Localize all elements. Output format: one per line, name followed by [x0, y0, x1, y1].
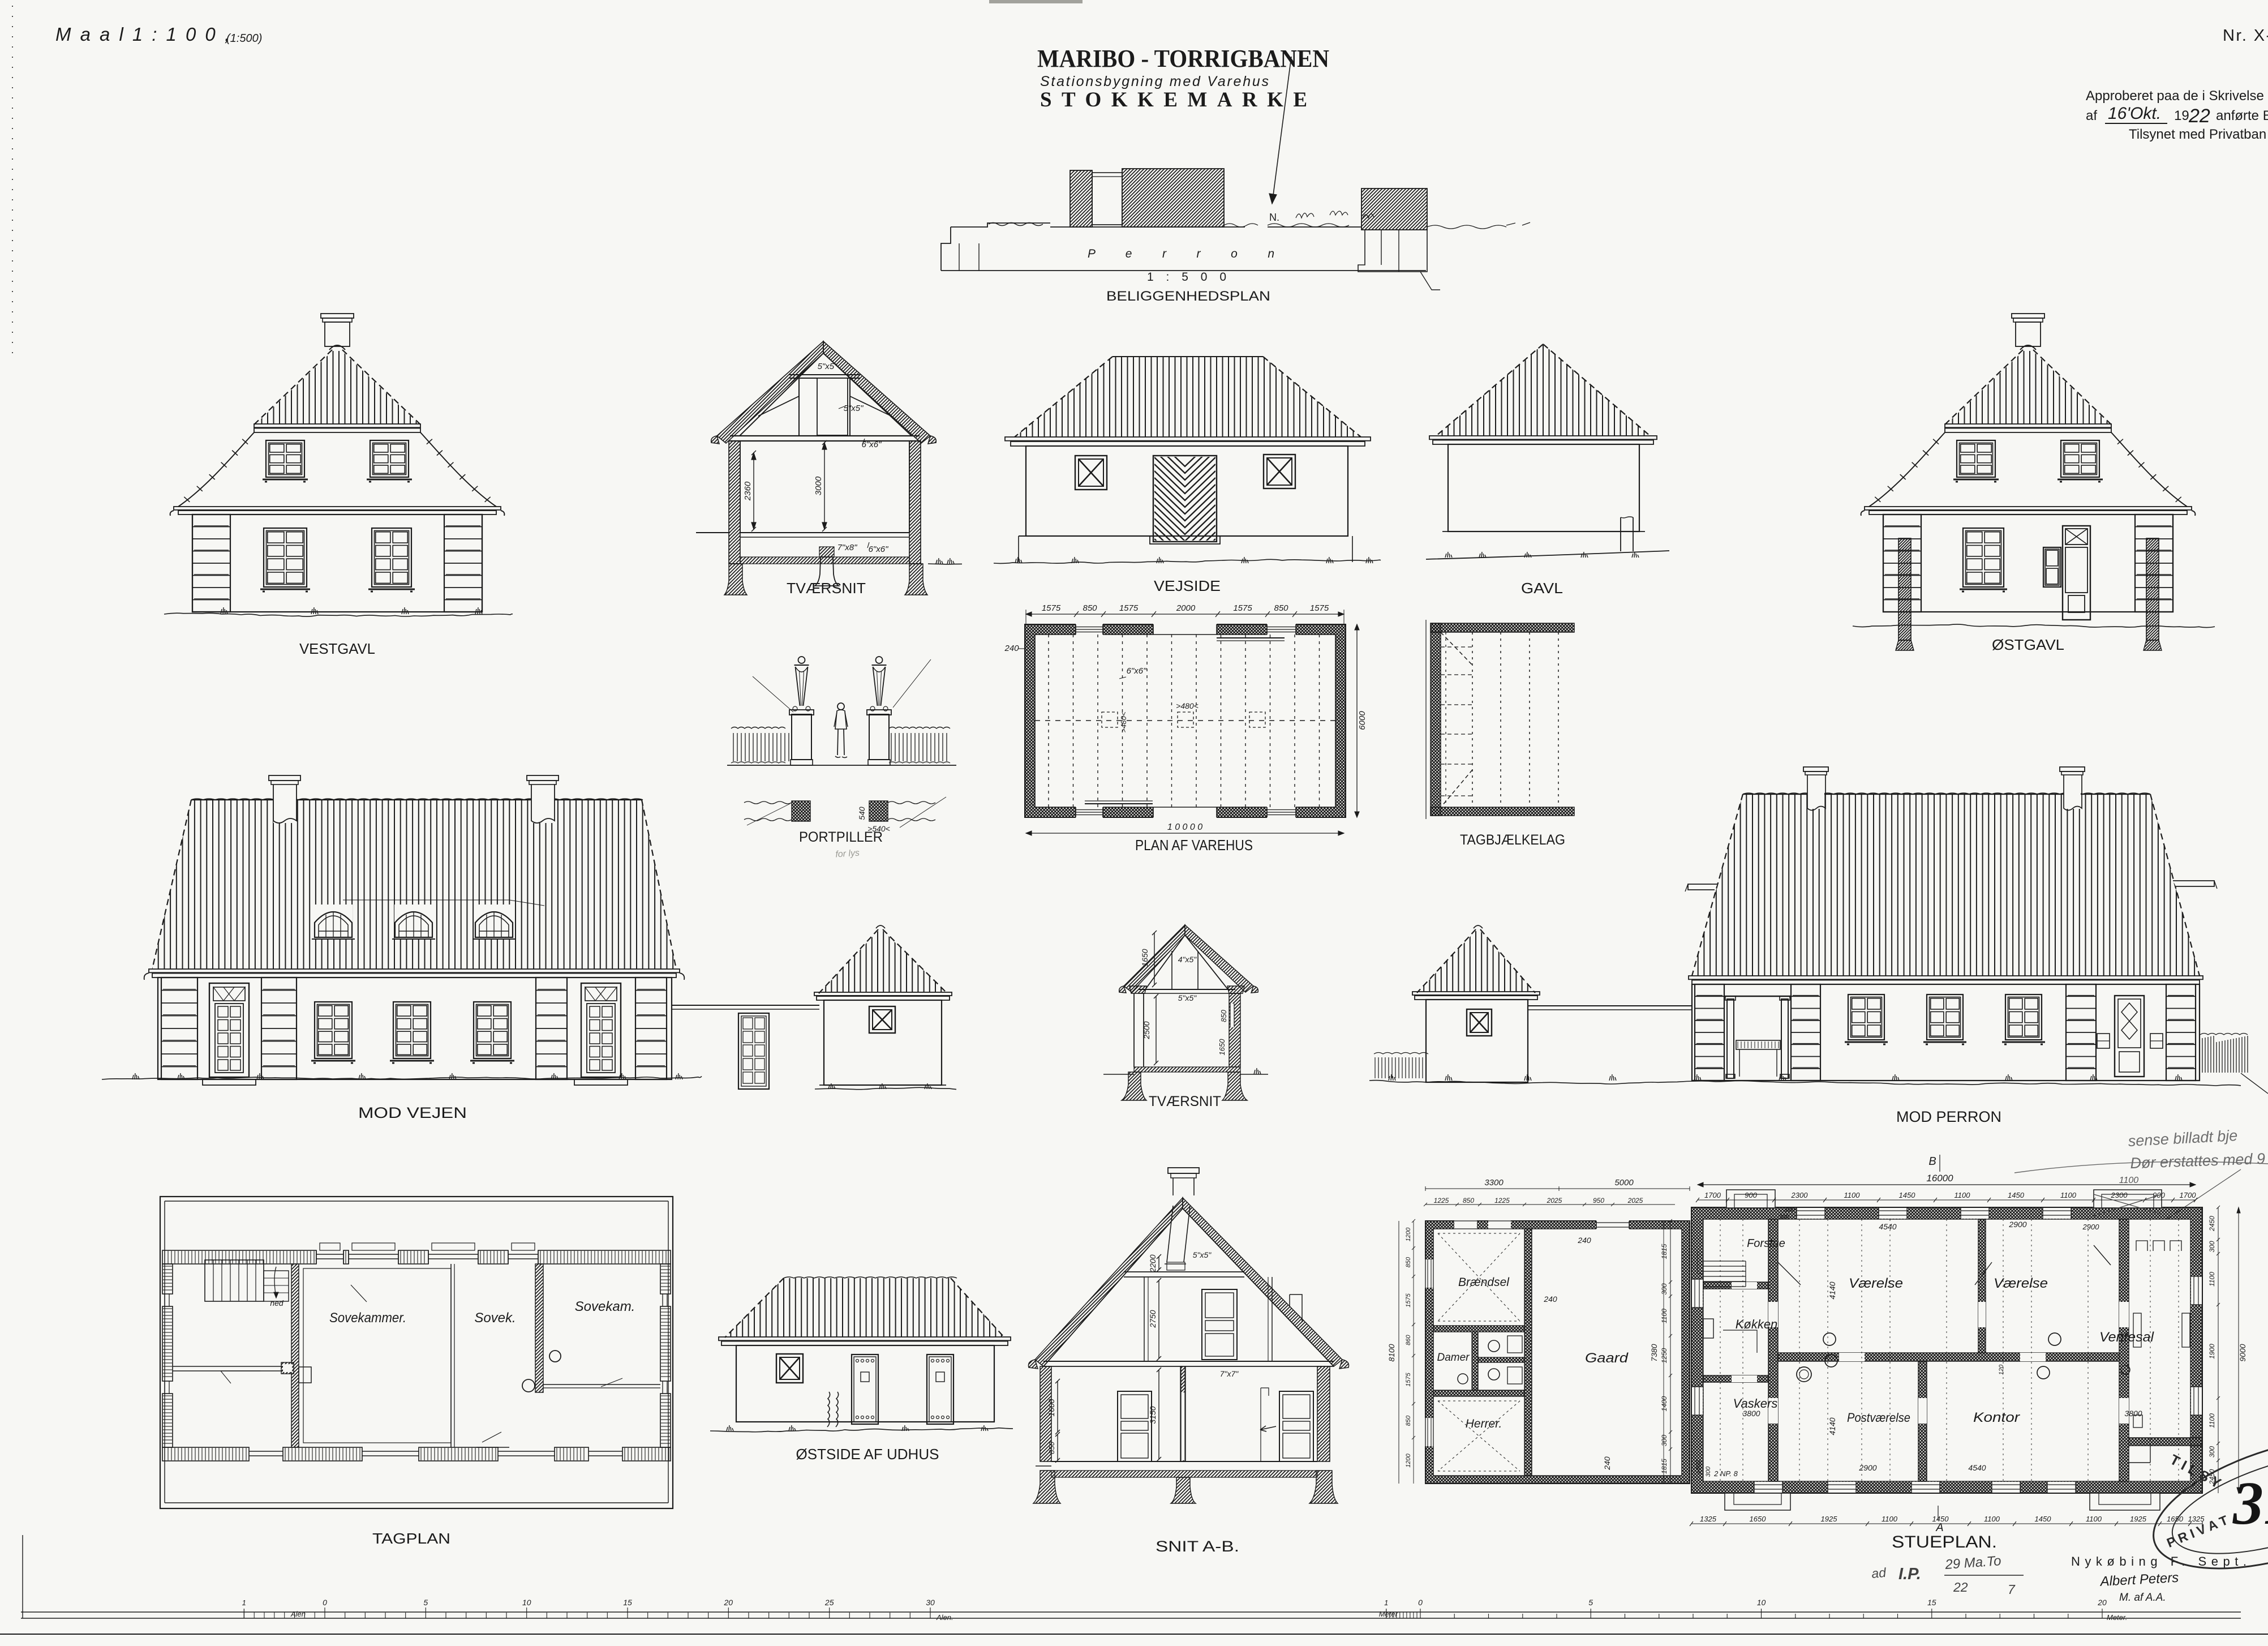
- svg-text:for lys: for lys: [835, 848, 860, 860]
- svg-text:1575: 1575: [1405, 1372, 1412, 1386]
- svg-text:850: 850: [1274, 603, 1288, 613]
- svg-text:3800: 3800: [1742, 1409, 1760, 1418]
- svg-text:31: 31: [2232, 1470, 2268, 1537]
- svg-text:GAVL: GAVL: [1521, 580, 1563, 597]
- svg-text:120: 120: [1998, 1364, 2005, 1375]
- svg-text:240: 240: [1603, 1456, 1612, 1471]
- svg-text:3150: 3150: [1148, 1406, 1157, 1424]
- svg-text:ØSTGAVL: ØSTGAVL: [1992, 636, 2064, 653]
- svg-text:1225: 1225: [1434, 1197, 1449, 1205]
- svg-text:VEJSIDE: VEJSIDE: [1154, 577, 1221, 594]
- svg-text:PORTPILLER: PORTPILLER: [799, 829, 883, 845]
- svg-text:Approberet paa de i Skrivelse: Approberet paa de i Skrivelse: [2086, 88, 2264, 104]
- svg-text:VESTGAVL: VESTGAVL: [299, 640, 375, 657]
- svg-text:3000: 3000: [814, 476, 823, 495]
- svg-text:Alen.: Alen.: [936, 1613, 953, 1622]
- svg-text:Gaard: Gaard: [1585, 1351, 1629, 1366]
- svg-text:850: 850: [1405, 1257, 1412, 1267]
- svg-text:240: 240: [1577, 1236, 1591, 1245]
- svg-text:850: 850: [1463, 1197, 1474, 1205]
- svg-text:19: 19: [2174, 108, 2189, 123]
- svg-text:Nr. X-l: Nr. X-l: [2223, 27, 2268, 45]
- svg-text:25: 25: [824, 1598, 834, 1607]
- svg-text:0: 0: [323, 1598, 327, 1607]
- svg-text:Nykøbing F. Sept.: Nykøbing F. Sept.: [2071, 1554, 2246, 1568]
- svg-text:850: 850: [1047, 1441, 1056, 1454]
- svg-text:1575: 1575: [1042, 603, 1061, 613]
- svg-text:af: af: [2086, 108, 2097, 123]
- svg-text:5000: 5000: [1614, 1178, 1634, 1188]
- svg-text:P e r r o n: P e r r o n: [1088, 247, 1274, 260]
- svg-text:2750: 2750: [1148, 1310, 1157, 1328]
- svg-text:15: 15: [1927, 1598, 1936, 1607]
- svg-text:M. af A.A.: M. af A.A.: [2119, 1592, 2166, 1604]
- svg-text:5: 5: [1588, 1598, 1593, 1607]
- svg-text:22: 22: [2188, 105, 2210, 127]
- svg-text:900: 900: [1745, 1191, 1757, 1199]
- svg-text:1600: 1600: [1047, 1399, 1056, 1416]
- svg-text:SNIT A-B.: SNIT A-B.: [1156, 1538, 1239, 1555]
- svg-text:Albert Peters: Albert Peters: [2099, 1570, 2179, 1589]
- svg-text:1460: 1460: [1695, 1460, 1702, 1474]
- svg-text:2300: 2300: [2111, 1191, 2128, 1199]
- svg-text:Meter: Meter: [1379, 1610, 1398, 1618]
- svg-text:22: 22: [1953, 1580, 1968, 1594]
- svg-text:M a a l 1 : 1 0 0 ,: M a a l 1 : 1 0 0 ,: [55, 24, 230, 45]
- svg-text:1700: 1700: [1704, 1191, 1721, 1199]
- svg-text:Alen: Alen: [290, 1610, 306, 1618]
- svg-text:1575: 1575: [1233, 603, 1252, 613]
- svg-text:10: 10: [1757, 1598, 1766, 1607]
- svg-text:1: 1: [1384, 1598, 1388, 1607]
- svg-text:6"x6": 6"x6": [869, 545, 889, 554]
- svg-text:2900: 2900: [1858, 1463, 1876, 1472]
- svg-text:300: 300: [1705, 1466, 1712, 1477]
- svg-text:950: 950: [1593, 1197, 1604, 1205]
- svg-text:MOD PERRON: MOD PERRON: [1896, 1108, 2001, 1125]
- svg-text:16000: 16000: [1926, 1173, 1953, 1184]
- svg-text:16'Okt.: 16'Okt.: [2108, 104, 2161, 123]
- svg-text:1100: 1100: [1844, 1191, 1861, 1199]
- svg-text:7"x7": 7"x7": [1220, 1369, 1239, 1378]
- svg-text:1: 1: [242, 1598, 246, 1607]
- svg-text:6"x6": 6"x6": [862, 440, 882, 449]
- svg-text:4540: 4540: [1879, 1222, 1896, 1231]
- svg-text:Damer: Damer: [1437, 1352, 1470, 1364]
- svg-text:>480<: >480<: [1119, 711, 1128, 732]
- svg-text:2360: 2360: [743, 481, 753, 501]
- svg-text:300: 300: [1784, 1206, 1795, 1213]
- svg-text:30: 30: [926, 1598, 935, 1607]
- svg-text:Tilsynet med Privatban: Tilsynet med Privatban: [2129, 127, 2266, 142]
- svg-text:860: 860: [1405, 1334, 1412, 1345]
- svg-text:B: B: [1928, 1155, 1936, 1168]
- svg-text:7"x8": 7"x8": [837, 543, 858, 552]
- svg-text:1225: 1225: [1494, 1197, 1510, 1205]
- svg-text:15: 15: [623, 1598, 632, 1607]
- svg-text:1575: 1575: [1119, 603, 1139, 613]
- svg-text:20: 20: [724, 1598, 733, 1607]
- svg-text:PLAN AF VAREHUS: PLAN AF VAREHUS: [1135, 837, 1253, 854]
- svg-text:850: 850: [1083, 603, 1097, 613]
- svg-text:20: 20: [2097, 1598, 2107, 1607]
- svg-text:1100: 1100: [1882, 1515, 1898, 1523]
- svg-text:4540: 4540: [1968, 1463, 1986, 1472]
- svg-text:1900: 1900: [2208, 1344, 2216, 1359]
- svg-text:300: 300: [2208, 1241, 2216, 1252]
- svg-text:1 : 5 0 0: 1 : 5 0 0: [1147, 271, 1226, 284]
- svg-text:1100: 1100: [2208, 1413, 2216, 1428]
- svg-text:5"x5": 5"x5": [1178, 993, 1197, 1002]
- svg-text:1450: 1450: [2035, 1515, 2052, 1523]
- svg-text:2900: 2900: [2082, 1223, 2100, 1231]
- svg-text:Kontor: Kontor: [1973, 1410, 2020, 1425]
- svg-text:1925: 1925: [2130, 1515, 2147, 1523]
- svg-text:8100: 8100: [1387, 1344, 1396, 1361]
- svg-text:ad: ad: [1871, 1565, 1887, 1581]
- svg-text:5: 5: [423, 1598, 428, 1607]
- svg-text:N.: N.: [1269, 212, 1279, 223]
- svg-text:1700: 1700: [2180, 1191, 2197, 1199]
- svg-text:MOD VEJEN: MOD VEJEN: [358, 1104, 467, 1121]
- svg-text:Forstue: Forstue: [1747, 1237, 1785, 1250]
- svg-text:4140: 4140: [1828, 1417, 1837, 1435]
- svg-text:Brændsel: Brændsel: [1458, 1276, 1510, 1289]
- svg-text:1450: 1450: [2008, 1191, 2025, 1199]
- svg-text:Ventesal: Ventesal: [2099, 1330, 2154, 1345]
- svg-text:1 0 0 0 0: 1 0 0 0 0: [1167, 822, 1202, 832]
- svg-text:4"x5": 4"x5": [1178, 955, 1197, 964]
- svg-text:1100: 1100: [2119, 1176, 2139, 1185]
- svg-text:sense billadt bje: sense billadt bje: [2128, 1127, 2238, 1150]
- svg-text:TVÆRSNIT: TVÆRSNIT: [1149, 1094, 1221, 1109]
- svg-text:Herrer.: Herrer.: [1466, 1417, 1502, 1430]
- svg-text:>480<: >480<: [1176, 701, 1199, 710]
- svg-text:(1:500): (1:500): [226, 32, 262, 45]
- svg-text:TAGBJÆLKELAG: TAGBJÆLKELAG: [1460, 832, 1565, 848]
- svg-text:1100: 1100: [1984, 1515, 2000, 1523]
- svg-text:3300: 3300: [1484, 1178, 1504, 1188]
- svg-text:TAGPLAN: TAGPLAN: [372, 1530, 450, 1547]
- svg-text:1100: 1100: [2086, 1515, 2102, 1523]
- svg-text:2200: 2200: [1148, 1254, 1157, 1272]
- svg-text:2900: 2900: [2008, 1220, 2026, 1229]
- svg-text:Værelse: Værelse: [1994, 1276, 2048, 1291]
- svg-text:1250: 1250: [1660, 1348, 1668, 1363]
- svg-text:1575: 1575: [1405, 1293, 1412, 1307]
- svg-text:1325: 1325: [1700, 1515, 1717, 1523]
- svg-text:Dør erstattes med 9: Dør erstattes med 9: [2130, 1150, 2265, 1172]
- svg-text:BELIGGENHEDSPLAN: BELIGGENHEDSPLAN: [1106, 289, 1270, 304]
- svg-text:4140: 4140: [1828, 1281, 1837, 1299]
- svg-text:Værelse: Værelse: [1849, 1276, 1903, 1291]
- svg-text:Stationsbygning med Varehus: Stationsbygning med Varehus: [1040, 74, 1269, 89]
- svg-text:5"x5": 5"x5": [844, 404, 864, 413]
- svg-text:29 Ma.To: 29 Ma.To: [1944, 1553, 2002, 1572]
- svg-text:1450: 1450: [1899, 1191, 1916, 1199]
- svg-text:2500: 2500: [1142, 1021, 1151, 1039]
- svg-text:5"x5": 5"x5": [818, 362, 838, 371]
- svg-text:1200: 1200: [1405, 1227, 1412, 1241]
- svg-text:I.P.: I.P.: [1898, 1565, 1921, 1583]
- svg-text:240: 240: [1004, 644, 1019, 653]
- svg-text:1925: 1925: [1821, 1515, 1838, 1523]
- svg-text:TVÆRSNIT: TVÆRSNIT: [787, 580, 866, 597]
- svg-text:2025: 2025: [1547, 1197, 1562, 1205]
- svg-text:ØSTSIDE AF UDHUS: ØSTSIDE AF UDHUS: [796, 1446, 939, 1463]
- svg-text:2000: 2000: [1176, 603, 1196, 613]
- svg-text:1400: 1400: [1660, 1396, 1668, 1411]
- svg-text:Sovekam.: Sovekam.: [575, 1299, 635, 1314]
- svg-text:1100: 1100: [2060, 1191, 2077, 1199]
- svg-text:1100: 1100: [1955, 1191, 1971, 1199]
- svg-text:850: 850: [1219, 1009, 1228, 1022]
- svg-text:300: 300: [1660, 1283, 1668, 1294]
- svg-text:ned: ned: [270, 1298, 284, 1308]
- svg-text:2 NP. 8: 2 NP. 8: [1713, 1469, 1738, 1478]
- svg-text:1815: 1815: [1660, 1244, 1668, 1259]
- svg-text:1815: 1815: [1660, 1459, 1668, 1474]
- svg-text:Postværelse: Postværelse: [1847, 1411, 1910, 1425]
- svg-text:540: 540: [857, 807, 866, 820]
- svg-text:1650: 1650: [1218, 1039, 1226, 1056]
- svg-text:1100: 1100: [1660, 1309, 1668, 1323]
- svg-text:6"x6": 6"x6": [1127, 666, 1147, 676]
- svg-text:Meter.: Meter.: [2107, 1613, 2127, 1622]
- svg-text:0: 0: [1418, 1598, 1423, 1607]
- svg-text:Sovek.: Sovek.: [474, 1310, 516, 1326]
- svg-text:850: 850: [1405, 1415, 1412, 1426]
- svg-text:7380: 7380: [1650, 1344, 1659, 1361]
- svg-text:3800: 3800: [2124, 1409, 2142, 1418]
- svg-text:240: 240: [1543, 1294, 1557, 1304]
- svg-text:6000: 6000: [1358, 711, 1367, 730]
- svg-text:2300: 2300: [1791, 1191, 1809, 1199]
- svg-text:STOKKEMARKE: STOKKEMARKE: [1040, 88, 1307, 112]
- svg-text:10: 10: [522, 1598, 531, 1607]
- svg-text:300: 300: [2208, 1446, 2216, 1458]
- svg-text:300: 300: [1779, 1214, 1789, 1221]
- svg-text:2025: 2025: [1627, 1197, 1643, 1205]
- svg-text:MARIBO - TORRIGBANEN: MARIBO - TORRIGBANEN: [1037, 45, 1329, 72]
- svg-text:2450: 2450: [2208, 1216, 2216, 1232]
- svg-text:Sovekammer.: Sovekammer.: [329, 1310, 406, 1326]
- svg-text:7: 7: [2008, 1582, 2016, 1597]
- svg-text:5"x5": 5"x5": [1193, 1250, 1212, 1259]
- svg-text:1200: 1200: [1405, 1453, 1412, 1467]
- svg-text:9000: 9000: [2238, 1344, 2247, 1361]
- svg-text:300: 300: [1660, 1435, 1668, 1446]
- svg-text:1650: 1650: [1750, 1515, 1767, 1523]
- svg-text:A: A: [1935, 1521, 1943, 1534]
- svg-text:Køkken: Køkken: [1736, 1317, 1778, 1331]
- svg-text:1100: 1100: [2208, 1272, 2216, 1287]
- svg-text:1575: 1575: [1310, 603, 1329, 613]
- svg-text:1650: 1650: [1140, 949, 1149, 966]
- svg-text:STUEPLAN.: STUEPLAN.: [1892, 1533, 1997, 1551]
- svg-text:anførte Beti: anførte Beti: [2216, 108, 2268, 123]
